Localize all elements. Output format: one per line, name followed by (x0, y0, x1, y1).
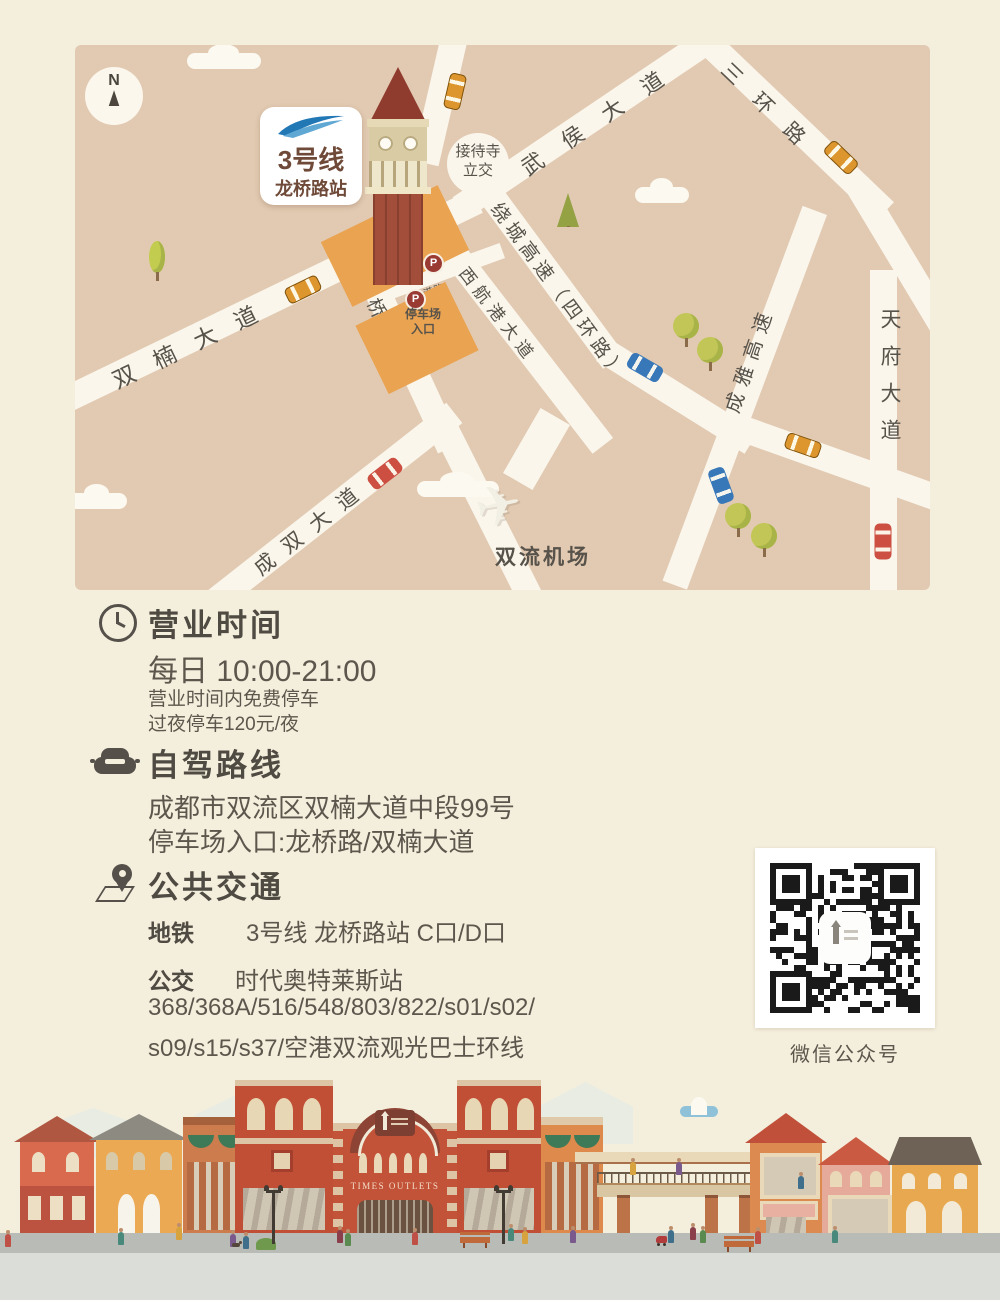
hours-note-free-parking: 营业时间内免费停车 (148, 684, 319, 711)
driving-title: 自驾路线 (148, 740, 284, 785)
car (875, 524, 892, 560)
person (118, 1228, 124, 1245)
transit-metro-label: 地铁 (148, 914, 194, 948)
person (508, 1224, 514, 1241)
shop-building (20, 1116, 94, 1233)
person (676, 1158, 682, 1175)
tree (673, 313, 699, 339)
tree (149, 241, 165, 273)
bench (724, 1241, 754, 1247)
stroller (656, 1236, 667, 1243)
person (668, 1226, 674, 1243)
location-pin-icon (100, 864, 140, 904)
shop-building (96, 1114, 182, 1233)
shop-building (892, 1137, 978, 1233)
mall-sign: TIMES OUTLETS (333, 1181, 457, 1191)
person (337, 1226, 343, 1243)
shop-building (822, 1137, 890, 1233)
person (176, 1223, 182, 1240)
road-label-shuangnan: 双楠大道 (106, 286, 283, 395)
tree (751, 523, 777, 549)
road-label-chengshuang: 成双大道 (247, 472, 376, 582)
hours-title: 营业时间 (148, 600, 284, 645)
person (412, 1228, 418, 1245)
metro-line-label: 3号线 (260, 146, 362, 175)
gate-tower (235, 1080, 333, 1233)
walkway-pillar (705, 1195, 718, 1236)
person (345, 1229, 351, 1246)
shop-building (541, 1117, 603, 1233)
interchange-label: 接待寺 立交 (431, 143, 525, 181)
wechat-qr-code (755, 848, 935, 1028)
transit-title: 公共交通 (148, 862, 284, 907)
metro-station-label: 龙桥路站 (260, 175, 362, 201)
person (570, 1226, 576, 1243)
person (243, 1232, 249, 1249)
map-panel: 双楠大道武侯大道三环路绕城高速（四环路）成雅高速天府大道西航港大道龙桥路成双大道… (75, 45, 930, 590)
entrance-gate (357, 1200, 433, 1233)
main-entrance-building: TIMES OUTLETS (333, 1108, 457, 1233)
person (832, 1226, 838, 1243)
metro-station-badge: 3号线 龙桥路站 (260, 107, 362, 205)
transit-bus-lines-2: s09/s15/s37/空港双流观光巴士环线 (148, 1028, 524, 1063)
person (700, 1226, 706, 1243)
road-label-wuhou: 武侯大道 (514, 48, 691, 182)
bench (460, 1237, 490, 1243)
driving-address: 成都市双流区双楠大道中段99号 (148, 788, 515, 825)
transit-bus-stop: 时代奥特莱斯站 (235, 961, 403, 996)
person (5, 1230, 11, 1247)
lamppost (272, 1192, 275, 1244)
walkway-pillar (617, 1195, 630, 1236)
dog (232, 1243, 240, 1247)
cloud (187, 53, 261, 69)
clock-tower-landmark (363, 67, 433, 285)
transit-bus-label: 公交 (148, 962, 194, 996)
person (630, 1158, 636, 1175)
parking-entrance-label: 停车场 入口 (397, 307, 449, 337)
street (0, 1233, 1000, 1253)
qr-caption: 微信公众号 (755, 1038, 935, 1067)
person (798, 1172, 804, 1189)
airport-label: 双流机场 (483, 545, 603, 571)
walkway-roof (575, 1152, 757, 1164)
mall-illustration: TIMES OUTLETS (0, 1080, 1000, 1300)
person (755, 1227, 761, 1244)
lamppost (502, 1192, 505, 1244)
transit-metro-value: 3号线 龙桥路站 C口/D口 (246, 913, 506, 948)
transit-bus-lines-1: 368/368A/516/548/803/822/s01/s02/ (148, 994, 535, 1022)
qr-center-logo (821, 914, 869, 962)
driving-entrance: 停车场入口:龙桥路/双楠大道 (148, 822, 474, 859)
cloud (680, 1106, 718, 1117)
hours-note-overnight: 过夜停车120元/夜 (148, 709, 299, 736)
tree (557, 193, 579, 227)
road-label-tianfu: 天府大道 (874, 308, 904, 456)
car-icon (92, 747, 138, 777)
compass-icon: N ▲ (85, 67, 143, 125)
person (522, 1227, 528, 1244)
shop-building (750, 1113, 822, 1233)
page: { "map": { "compass": "N", "metro_badge"… (0, 0, 1000, 1300)
arch-logo-plaque (375, 1110, 415, 1136)
cloud (75, 493, 127, 509)
road-label-sanhuan: 三环路 (715, 55, 829, 166)
metro-wave-icon (275, 113, 347, 139)
clock-icon (99, 604, 137, 642)
tree (697, 337, 723, 363)
tree (725, 503, 751, 529)
sidewalk (0, 1253, 1000, 1300)
person (690, 1223, 696, 1240)
cloud (635, 187, 689, 203)
compass-arrow-icon: ▲ (85, 87, 143, 108)
gate-tower (457, 1080, 541, 1233)
